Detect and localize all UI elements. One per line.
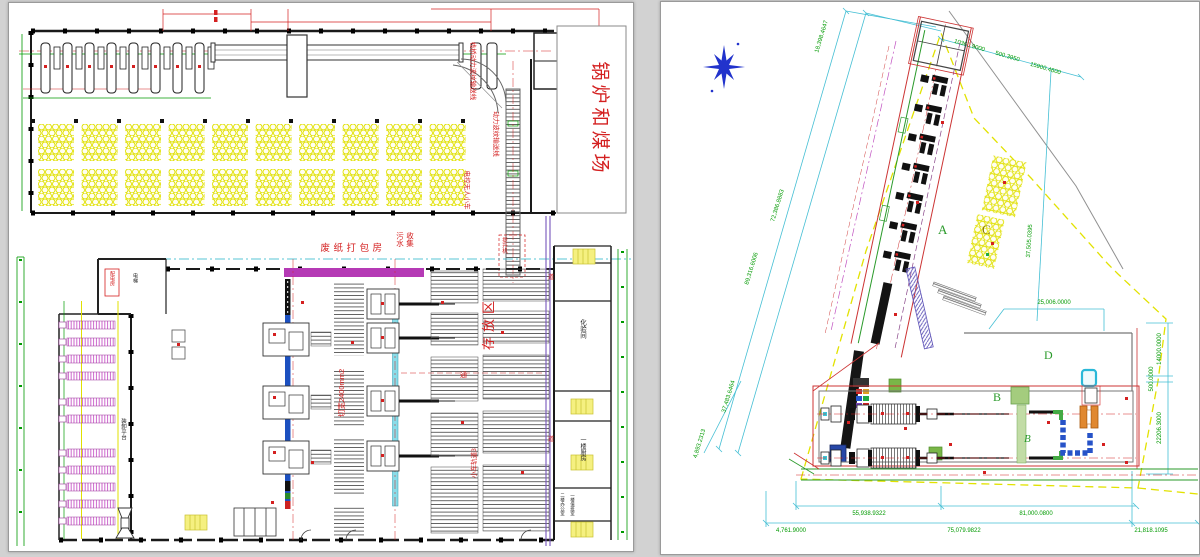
coal-patches [967, 155, 1027, 268]
feed-conveyors [933, 282, 987, 315]
dim-right-1: 14000.0000 [1157, 332, 1163, 364]
boiler-strip-building [848, 17, 973, 358]
strip-conveyor [871, 282, 893, 345]
coal-yard-label-box: 锅炉和煤场 [557, 26, 626, 213]
dim-bottom-4: 81,000.0800 [1019, 511, 1053, 517]
dim-diag-3: 89,316.6006 [744, 251, 760, 285]
power-room-label: 配电房 [109, 271, 115, 287]
dim-mid-1: 37,505.0395 [1026, 223, 1034, 257]
dim-bottom-5: 21,818.1095 [1134, 528, 1168, 534]
roll-storage [38, 124, 466, 206]
dim-diag-2: 72,386.8883 [770, 188, 786, 222]
area-label-d: D [1044, 348, 1053, 362]
north-arrow-icon [703, 43, 745, 93]
conveyor-duct [211, 35, 463, 97]
dimension-lines [704, 8, 1199, 527]
dim-mid-2: 25,006.0000 [1037, 300, 1071, 306]
coal-yard-label: 锅炉和煤场 [589, 61, 611, 176]
right-drawing-sheet: 18,398.4647 72,386.8883 89,316.6006 37,4… [660, 1, 1200, 555]
cart-track-label: 小车轨道3 [469, 448, 478, 478]
duty-room-label: 一楼值班室 [570, 493, 576, 516]
machine-row [41, 43, 214, 93]
baling-conveyor [284, 268, 424, 277]
area-label-b2: B [1024, 433, 1031, 445]
sewage-label-1: 污水 [395, 232, 404, 248]
aisle-char-1: 道 [548, 273, 554, 281]
elevator-label: 电梯 [132, 272, 138, 284]
site-plan-svg: 18,398.4647 72,386.8883 89,316.6006 37,4… [661, 2, 1199, 554]
area-label-a: A [938, 222, 948, 237]
dim-diag-1: 18,398.4647 [814, 19, 830, 53]
cad-workspace: 栈桥动力波纹输送线 动力波纹输送线 电控无人小车 锅炉和煤场 [0, 0, 1200, 557]
road-edge [825, 46, 889, 334]
hoist-label: 提升机 [501, 236, 508, 255]
sewage-label-2: 收集 [405, 231, 414, 249]
cut-width-label: 切宽2400mm2 [336, 369, 346, 417]
dim-right-3: 22206.3000 [1157, 411, 1163, 443]
dim-bottom-2: 55,938.9322 [852, 511, 886, 517]
dim-bottom-3: 75,079.9822 [947, 528, 981, 534]
dim-diag-5: 4,893.2313 [693, 428, 708, 459]
green-tower [1011, 387, 1029, 463]
dim-top-3: 15900.4600 [1029, 62, 1062, 77]
dim-top-2: 500.3950 [994, 51, 1020, 64]
top-dimensions [163, 9, 599, 31]
label-power-conveyor: 动力波纹输送线 [492, 111, 501, 157]
toilet-block [234, 508, 276, 536]
dim-right-2: 500.0000 [1149, 366, 1155, 392]
kitchen-label: 一楼厨房 [579, 437, 586, 462]
office-2f-label: 二楼办公室 [560, 493, 566, 516]
upper-plan: 栈桥动力波纹输送线 动力波纹输送线 电控无人小车 [19, 9, 599, 283]
site-boundary [801, 33, 1198, 494]
power-room: 配电房 电梯 [98, 259, 166, 314]
storage-area-label: 存放区 [481, 296, 496, 350]
lower-plan: 配电房 电梯 装卸平台 [17, 216, 631, 546]
area-label-c: C [982, 222, 991, 237]
dim-bottom-1: 4,761.9000 [776, 528, 807, 534]
left-drawing-sheet: 栈桥动力波纹输送线 动力波纹输送线 电控无人小车 锅炉和煤场 [8, 2, 634, 552]
baling-room-label: 废纸打包房 [320, 242, 385, 254]
lab-room-label: 化验间 [579, 318, 587, 340]
refiner-unit [1080, 370, 1100, 428]
right-rooms: 化验间 一楼厨房 二楼办公室 一楼值班室 [546, 216, 627, 546]
loading-platform-label: 装卸平台 [120, 417, 127, 442]
left-plan-svg: 栈桥动力波纹输送线 动力波纹输送线 电控无人小车 锅炉和煤场 [9, 3, 633, 551]
label-agv-cart: 电控无人小车 [463, 171, 472, 211]
aisle-char-2: 道 [548, 435, 554, 443]
left-annex: 装卸平台 [59, 301, 131, 540]
area-label-b: B [993, 390, 1001, 404]
bridge-conveyor [906, 267, 933, 349]
left-dim-column [17, 257, 24, 546]
aisle-char-3: 通 [460, 370, 467, 379]
label-trestle-conveyor: 栈桥动力波纹输送线 [469, 42, 478, 101]
